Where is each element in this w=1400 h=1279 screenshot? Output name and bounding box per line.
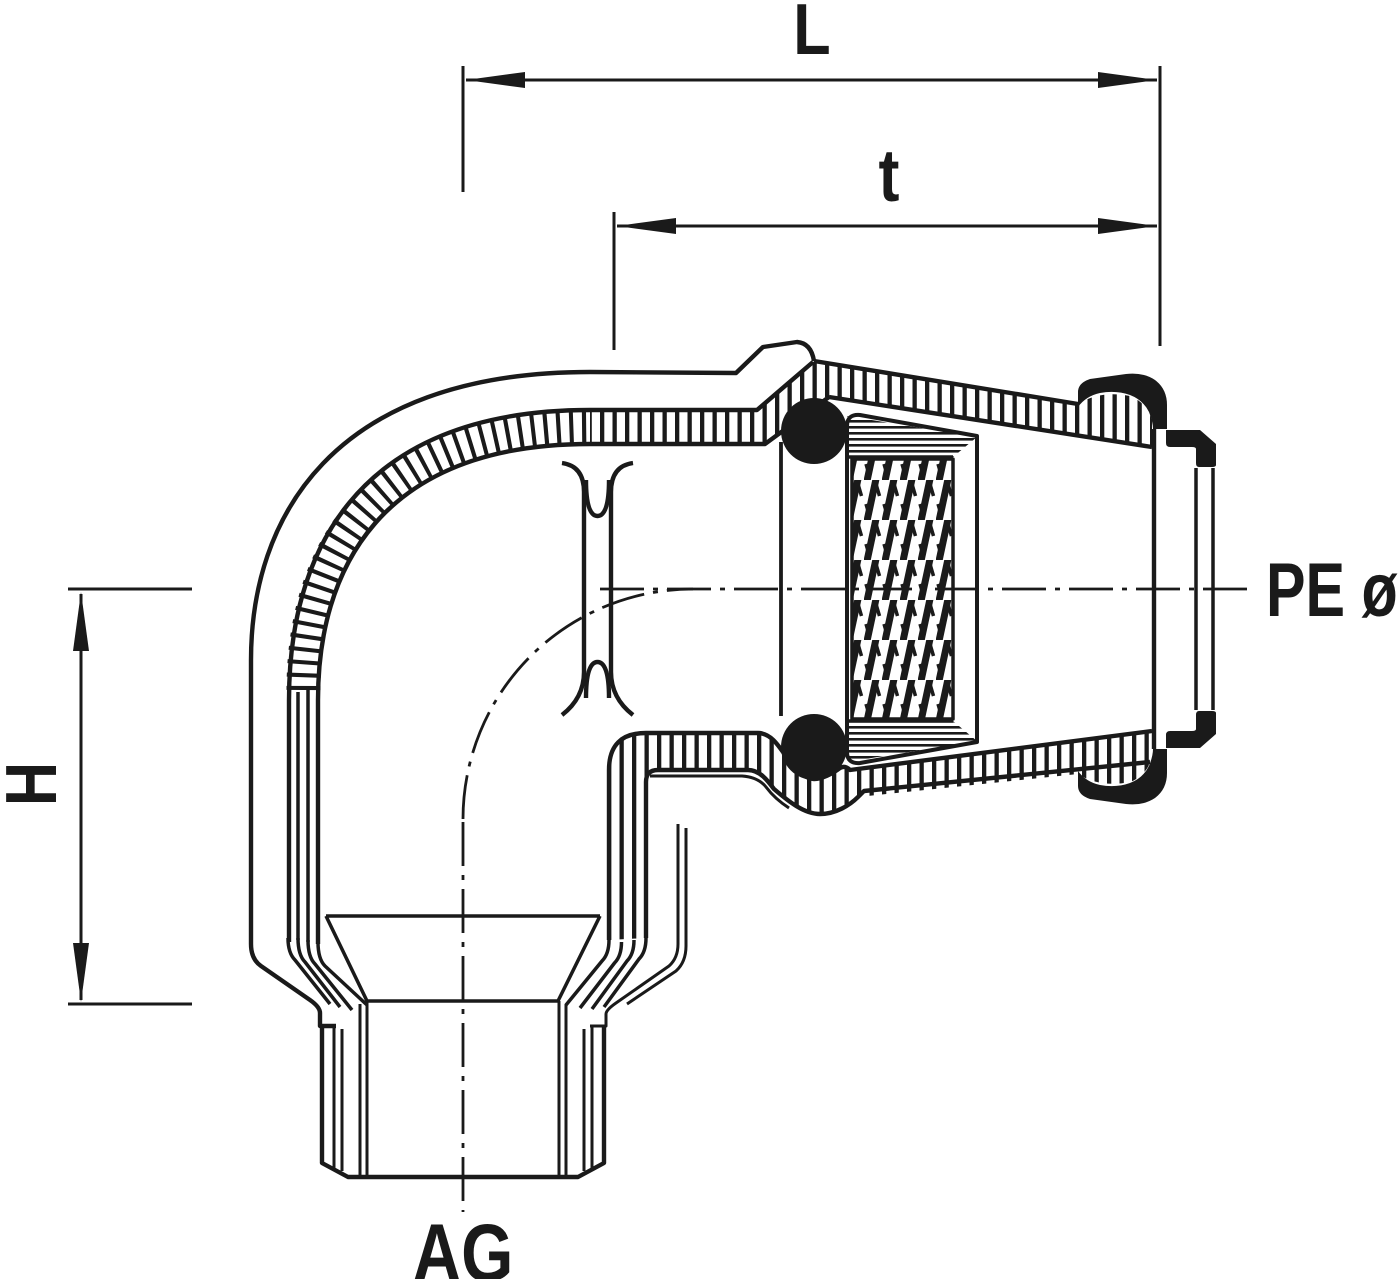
- svg-text:H: H: [0, 762, 72, 806]
- svg-text:PE ø: PE ø: [1266, 548, 1398, 633]
- svg-text:t: t: [879, 134, 900, 217]
- svg-text:AG: AG: [413, 1207, 514, 1279]
- svg-text:L: L: [793, 0, 830, 70]
